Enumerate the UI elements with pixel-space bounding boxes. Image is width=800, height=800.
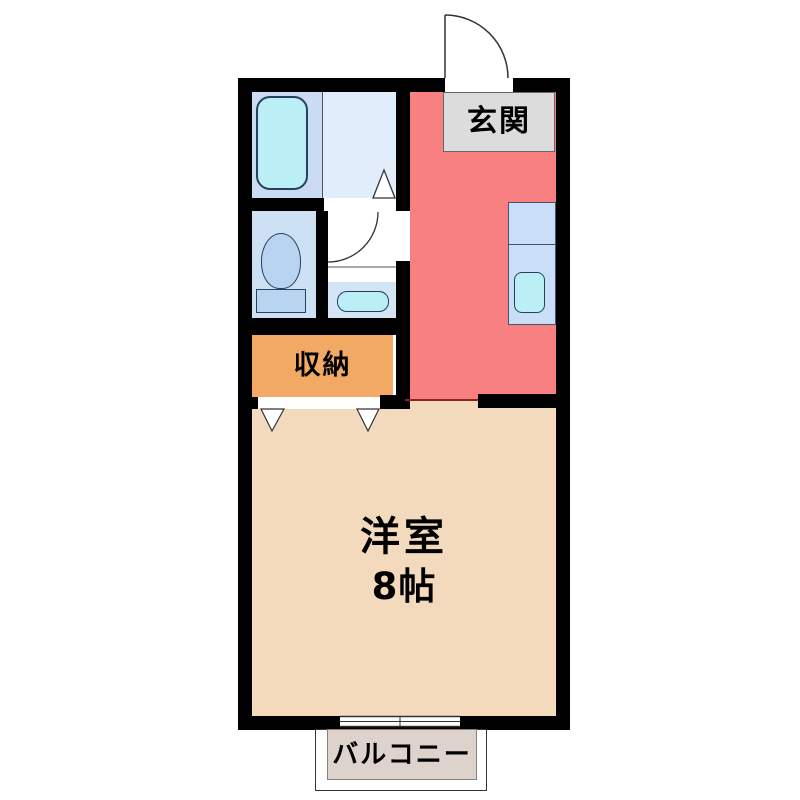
entrance-door-swing-icon bbox=[445, 15, 508, 78]
washroom-floor bbox=[322, 92, 397, 198]
vestibule-door-gap bbox=[396, 211, 410, 261]
genkan-label: 玄関 bbox=[467, 107, 531, 137]
balcony-floor: バルコニー bbox=[327, 729, 477, 780]
vanity-sink-icon bbox=[337, 291, 389, 312]
entrance-door-gap bbox=[445, 78, 513, 92]
wall-stub-left bbox=[238, 397, 258, 409]
bathroom-door-gap bbox=[324, 198, 396, 211]
western-room-size-label: 8帖 bbox=[252, 568, 556, 605]
wall-hall-room bbox=[478, 394, 570, 408]
floorplan-canvas: 玄関 バルコニー 収納 洋室 8帖 bbox=[0, 0, 800, 800]
wall-stub-right bbox=[380, 395, 410, 409]
bathtub-icon bbox=[256, 96, 308, 190]
wall-toilet-vestibule bbox=[316, 211, 328, 318]
toilet-tank-icon bbox=[256, 289, 306, 313]
kitchen-counter-divider bbox=[508, 244, 556, 245]
sliding-window bbox=[340, 716, 460, 727]
balcony-label: バルコニー bbox=[332, 742, 471, 768]
kitchen-sink-icon bbox=[514, 272, 545, 313]
genkan-label-box: 玄関 bbox=[443, 92, 555, 152]
toilet-icon bbox=[261, 233, 301, 289]
western-room-label: 洋室 bbox=[252, 517, 556, 557]
storage-door-gap bbox=[258, 397, 380, 409]
vestibule-floor bbox=[328, 211, 396, 282]
wall-toilet-storage bbox=[238, 318, 410, 335]
storage-label: 収納 bbox=[252, 352, 393, 379]
